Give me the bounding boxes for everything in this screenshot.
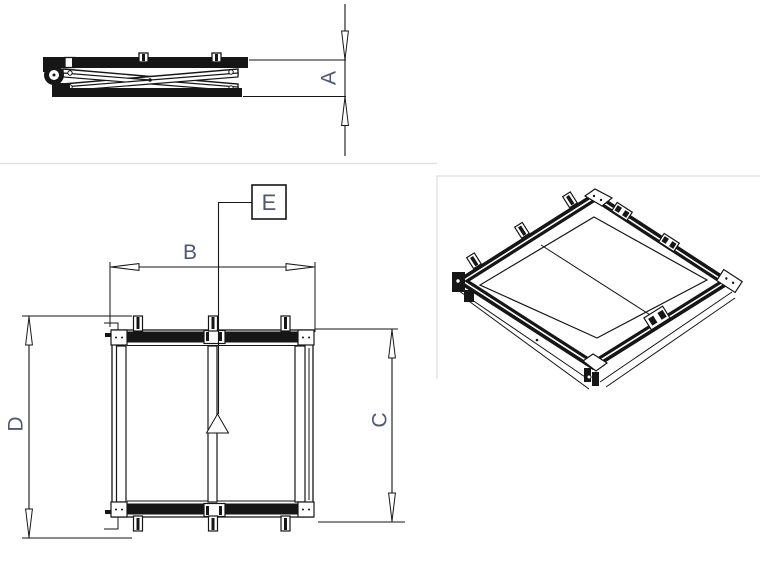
tab-stem bbox=[142, 54, 145, 61]
arrowhead-up-icon bbox=[342, 97, 349, 126]
arrowhead-down-icon bbox=[342, 31, 349, 60]
left-rail bbox=[117, 346, 127, 502]
dimension-c: C bbox=[315, 329, 405, 522]
dimension-a: A bbox=[243, 4, 348, 156]
corner-plate bbox=[111, 330, 127, 345]
dim-label-b: B bbox=[183, 241, 197, 264]
callout-label-e: E bbox=[262, 190, 277, 215]
tab-stem bbox=[72, 58, 75, 68]
left-foot bbox=[464, 290, 474, 302]
pin-hole bbox=[229, 70, 233, 74]
plan-view bbox=[104, 316, 314, 531]
arrowhead-right-icon bbox=[286, 264, 314, 271]
technical-drawing: A bbox=[0, 0, 760, 561]
center-pin bbox=[148, 78, 152, 82]
pin-hole bbox=[68, 71, 72, 75]
dim-label-a: A bbox=[317, 71, 340, 85]
side-view-collapsed bbox=[43, 53, 248, 97]
leader-line bbox=[219, 203, 253, 415]
base-bar bbox=[52, 88, 242, 97]
dim-label-d: D bbox=[4, 416, 27, 431]
platform-dot bbox=[536, 339, 539, 342]
corner-plate bbox=[111, 502, 127, 517]
side-lug bbox=[105, 333, 111, 337]
arrowhead-up-icon bbox=[389, 330, 396, 358]
isometric-view bbox=[452, 189, 742, 389]
dim-label-c: C bbox=[368, 412, 391, 427]
tab-stem bbox=[215, 54, 218, 61]
corner-plate bbox=[298, 502, 314, 517]
right-rail bbox=[295, 346, 305, 502]
side-lug bbox=[105, 510, 111, 514]
arrowhead-up-icon bbox=[26, 317, 33, 345]
corner-plate bbox=[298, 330, 314, 345]
scissor-arms bbox=[63, 69, 238, 91]
arrowhead-down-icon bbox=[389, 493, 396, 521]
detail-callout-e: E bbox=[207, 185, 287, 433]
arrowhead-down-icon bbox=[26, 509, 33, 537]
arrowhead-left-icon bbox=[111, 264, 139, 271]
drawing-sheet: A bbox=[0, 0, 760, 561]
roller-axle bbox=[53, 74, 56, 77]
